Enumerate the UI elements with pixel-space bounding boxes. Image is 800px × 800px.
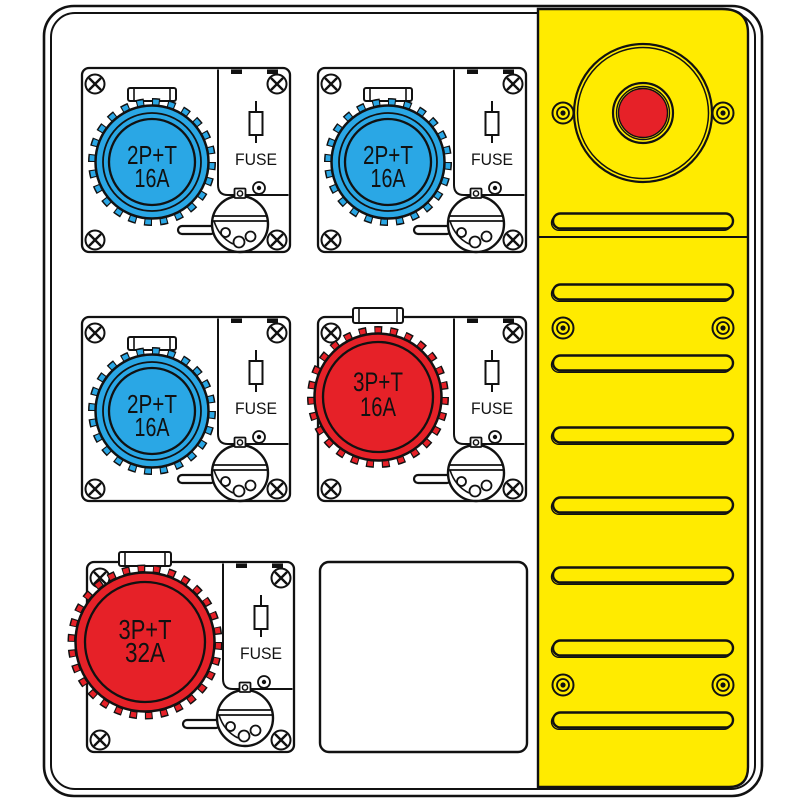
outlet-screw	[253, 431, 265, 443]
plate-screw	[268, 75, 287, 94]
vent-slot	[553, 428, 733, 443]
blank-cover-plate	[320, 562, 527, 752]
emergency-stop-button[interactable]	[619, 89, 668, 138]
yellow-side-panel	[538, 9, 748, 787]
outlet-latch-pin	[242, 685, 247, 690]
fuse-label: FUSE	[471, 150, 513, 169]
pin-hole	[246, 232, 256, 242]
plate-screw	[504, 324, 523, 343]
socket-module-top-center: FUSE2P+T16A	[318, 68, 526, 252]
plate-notch	[503, 319, 514, 324]
fuse-label: FUSE	[235, 399, 277, 418]
pin-hole	[239, 731, 250, 742]
plate-notch	[236, 564, 247, 569]
plate-screw	[322, 480, 341, 499]
plate-screw	[504, 480, 523, 499]
plate-notch	[231, 319, 242, 324]
socket-label-line2: 16A	[135, 412, 170, 442]
pin-hole	[221, 228, 230, 237]
plate-screw	[504, 75, 523, 94]
plate-screw	[86, 480, 105, 499]
plate-screw	[272, 731, 291, 750]
plate-screw	[86, 231, 105, 250]
vent-slot	[553, 641, 733, 656]
socket-module-middle-center: FUSE3P+T16A	[311, 308, 526, 501]
socket-module-top-left: FUSE2P+T16A	[82, 68, 290, 252]
outlet-screw	[258, 676, 270, 688]
plate-screw	[504, 231, 523, 250]
socket-label-line2: 16A	[360, 392, 396, 422]
plate-notch	[267, 70, 278, 75]
socket-label-line2: 16A	[371, 163, 406, 193]
plate-screw	[91, 731, 110, 750]
outlet-latch-pin	[237, 440, 242, 445]
plate-notch	[503, 70, 514, 75]
pin-hole	[482, 232, 492, 242]
outlet-latch-pin	[473, 440, 478, 445]
vent-slot	[553, 285, 733, 300]
pin-hole	[234, 486, 245, 497]
pin-hole	[457, 228, 466, 237]
plate-screw	[86, 75, 105, 94]
pin-hole	[221, 477, 230, 486]
plate-screw	[86, 324, 105, 343]
plate-screw	[322, 75, 341, 94]
interlock-lever[interactable]	[414, 475, 451, 483]
pin-hole	[234, 237, 245, 248]
pin-hole	[457, 477, 466, 486]
lid-hinge-tab	[364, 88, 412, 101]
plate-screw	[268, 480, 287, 499]
vent-slot	[553, 498, 733, 513]
pin-hole	[470, 237, 481, 248]
socket-module-middle-left: FUSE2P+T16A	[82, 317, 290, 501]
plate-notch	[272, 564, 283, 569]
outlet-screw	[253, 182, 265, 194]
outlet-latch-pin	[473, 191, 478, 196]
lid-hinge-tab	[119, 552, 171, 566]
socket-label-line2: 16A	[135, 163, 170, 193]
plate-notch	[267, 319, 278, 324]
pin-hole	[470, 486, 481, 497]
plate-screw	[322, 231, 341, 250]
lid-hinge-tab	[128, 88, 176, 101]
plate-notch	[467, 319, 478, 324]
interlock-lever[interactable]	[183, 720, 220, 728]
vent-slot	[553, 356, 733, 371]
outlet-screw	[489, 182, 501, 194]
pin-hole	[226, 722, 235, 731]
plate-screw	[322, 324, 341, 343]
pin-hole	[482, 481, 492, 491]
interlock-lever[interactable]	[414, 226, 451, 234]
outlet-latch-pin	[237, 191, 242, 196]
socket-label-line2: 32A	[125, 637, 165, 668]
interlock-lever[interactable]	[178, 475, 215, 483]
vent-slot	[553, 568, 733, 583]
fuse-label: FUSE	[235, 150, 277, 169]
interlock-lever[interactable]	[178, 226, 215, 234]
outlet-screw	[489, 431, 501, 443]
vent-slot	[553, 713, 733, 728]
lid-hinge-tab	[353, 308, 403, 323]
socket-module-bottom-left: FUSE3P+T32A	[72, 552, 295, 752]
distribution-board-drawing: FUSE2P+T16AFUSE2P+T16AFUSE2P+T16AFUSE3P+…	[0, 0, 800, 800]
plate-screw	[268, 324, 287, 343]
vent-slot	[553, 214, 733, 229]
pin-hole	[251, 726, 261, 736]
plate-notch	[467, 70, 478, 75]
plate-notch	[231, 70, 242, 75]
plate-screw	[272, 569, 291, 588]
fuse-label: FUSE	[471, 399, 513, 418]
pin-hole	[246, 481, 256, 491]
fuse-label: FUSE	[240, 644, 282, 663]
plate-screw	[268, 231, 287, 250]
lid-hinge-tab	[128, 337, 176, 350]
